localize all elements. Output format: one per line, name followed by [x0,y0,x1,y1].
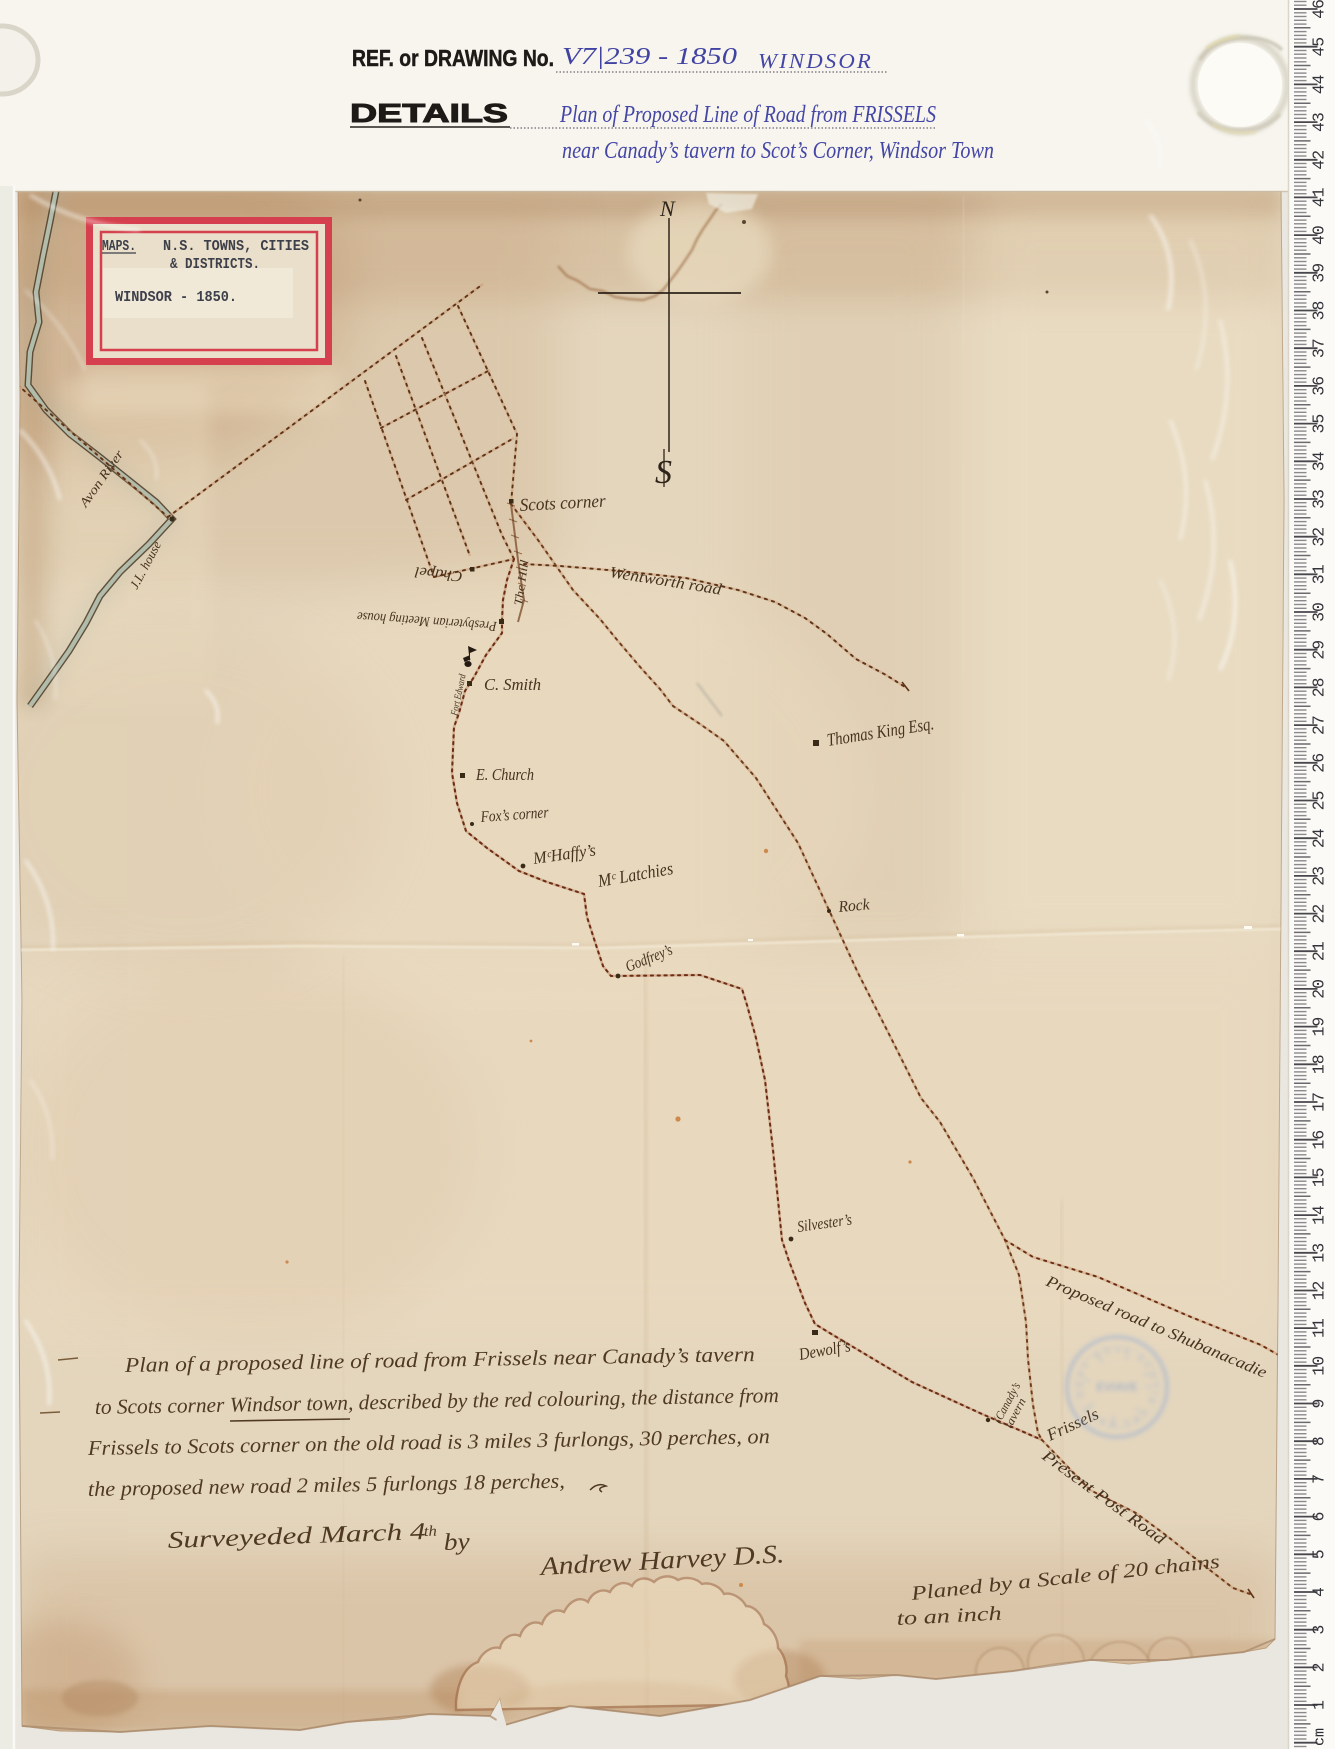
svg-text:E. Church: E. Church [475,765,534,784]
svg-text:by: by [443,1529,470,1556]
svg-text:19: 19 [1310,1017,1329,1037]
svg-text:WINDSOR - 1850.: WINDSOR - 1850. [115,290,237,306]
svg-text:27: 27 [1310,715,1329,735]
svg-text:38: 38 [1310,301,1329,321]
svg-text:32: 32 [1310,527,1329,547]
svg-text:4: 4 [1310,1587,1329,1597]
svg-text:5: 5 [1310,1549,1329,1559]
svg-text:33: 33 [1310,489,1329,509]
svg-text:9: 9 [1310,1399,1329,1409]
svg-text:8: 8 [1310,1436,1329,1446]
svg-text:44: 44 [1310,74,1329,94]
svg-text:3: 3 [1310,1625,1329,1635]
svg-text:V7|239 - 1850: V7|239 - 1850 [562,44,737,70]
svg-text:45: 45 [1310,37,1329,57]
svg-text:29: 29 [1310,640,1329,660]
svg-text:30: 30 [1310,602,1329,622]
svg-text:C. Smith: C. Smith [484,675,541,694]
svg-text:th: th [424,1524,438,1540]
svg-text:N: N [659,196,676,221]
svg-text:6: 6 [1310,1512,1329,1522]
svg-text:2: 2 [1310,1662,1329,1672]
svg-text:16: 16 [1310,1130,1329,1150]
svg-text:34: 34 [1310,451,1329,471]
svg-text:REF. or DRAWING No.: REF. or DRAWING No. [352,45,554,71]
svg-text:28: 28 [1310,677,1329,697]
svg-text:EVIAVE: EVIAVE [1096,1382,1138,1394]
svg-text:25: 25 [1310,791,1329,811]
svg-text:23: 23 [1310,866,1329,886]
svg-text:26: 26 [1310,753,1329,773]
svg-text:22: 22 [1310,904,1329,924]
svg-text:40: 40 [1310,225,1329,245]
svg-text:DETAILS: DETAILS [350,98,508,128]
svg-text:35: 35 [1310,414,1329,434]
svg-text:& DISTRICTS.: & DISTRICTS. [170,257,260,273]
svg-text:WINDSOR: WINDSOR [758,49,873,73]
svg-text:7: 7 [1310,1474,1329,1484]
svg-text:24: 24 [1310,828,1329,848]
svg-text:20: 20 [1310,979,1329,999]
svg-text:near Canady’s tavern to Scot’s: near Canady’s tavern to Scot’s Corner, W… [562,138,994,164]
svg-text:17: 17 [1310,1092,1329,1112]
svg-text:cm: cm [1312,1728,1329,1746]
svg-text:42: 42 [1310,150,1329,170]
svg-text:1: 1 [1310,1700,1329,1710]
svg-text:39: 39 [1310,263,1329,283]
svg-text:10: 10 [1310,1356,1329,1376]
svg-text:13: 13 [1310,1243,1329,1263]
svg-text:41: 41 [1310,187,1329,207]
svg-text:37: 37 [1310,338,1329,358]
svg-text:18: 18 [1310,1054,1329,1074]
svg-text:43: 43 [1310,112,1329,132]
svg-text:12: 12 [1310,1281,1329,1301]
svg-text:14: 14 [1310,1205,1329,1225]
svg-text:15: 15 [1310,1167,1329,1187]
svg-text:Rock: Rock [837,896,871,916]
svg-text:11: 11 [1310,1318,1329,1338]
svg-text:21: 21 [1310,941,1329,961]
svg-text:36: 36 [1310,376,1329,396]
svg-text:Plan of Proposed Line of Road: Plan of Proposed Line of Road from FRISS… [559,102,936,128]
svg-text:N.S. TOWNS, CITIES: N.S. TOWNS, CITIES [163,239,309,255]
svg-text:46: 46 [1310,0,1329,19]
svg-text:31: 31 [1310,564,1329,584]
